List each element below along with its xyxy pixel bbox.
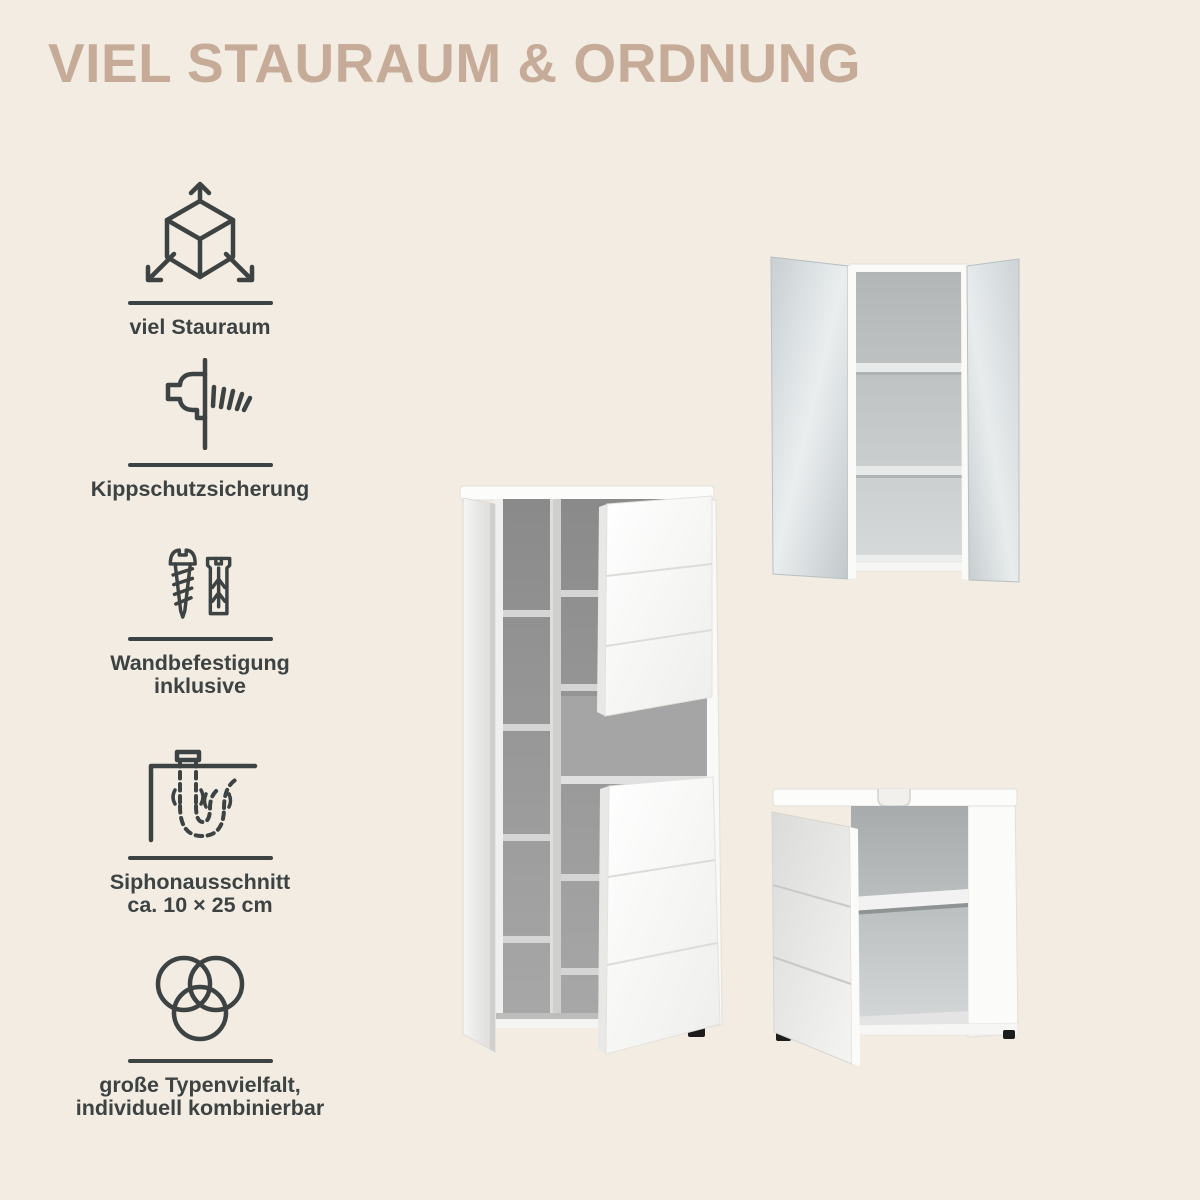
tall-storage-cabinet-open xyxy=(450,483,735,1075)
divider xyxy=(128,463,273,467)
variety-circles-icon xyxy=(140,953,260,1046)
divider xyxy=(128,637,273,641)
siphon-notch xyxy=(878,789,910,806)
wall-mounting-screw-dowel-icon xyxy=(162,546,238,624)
mirror-door-right xyxy=(961,259,1019,582)
tall-cabinet-left-door xyxy=(463,498,495,1052)
feature-wall-mounting: Wandbefestigung inklusive xyxy=(58,546,342,698)
feature-label: Siphonausschnitt ca. 10 × 25 cm xyxy=(110,871,290,917)
product-infographic: VIEL STAURAUM & ORDNUNG viel Stauraum xyxy=(0,0,1200,1200)
storage-volume-cube-icon xyxy=(135,181,265,288)
divider xyxy=(128,856,273,860)
tall-cabinet-upper-door xyxy=(597,496,712,716)
page-title: VIEL STAURAUM & ORDNUNG xyxy=(48,36,861,91)
sink-base-cabinet-open xyxy=(765,785,1025,1077)
sink-cabinet-door xyxy=(772,812,860,1066)
divider xyxy=(128,1059,273,1063)
feature-anti-tip: Kippschutzsicherung xyxy=(58,358,342,501)
feature-siphon-cutout: Siphonausschnitt ca. 10 × 25 cm xyxy=(58,744,342,917)
mirror-door-left xyxy=(771,257,856,579)
feature-label: viel Stauraum xyxy=(130,316,271,339)
tall-cabinet-lower-door xyxy=(598,777,720,1054)
mirror-wall-cabinet-open xyxy=(765,250,1025,590)
feature-storage: viel Stauraum xyxy=(58,181,342,339)
feature-label: Wandbefestigung inklusive xyxy=(110,652,290,698)
divider xyxy=(128,301,273,305)
feature-label: Kippschutzsicherung xyxy=(91,478,310,501)
feature-label: große Typenvielfalt, individuell kombini… xyxy=(76,1074,325,1120)
feature-variety: große Typenvielfalt, individuell kombini… xyxy=(58,953,342,1120)
anti-tip-screw-icon xyxy=(135,358,265,450)
siphon-cutout-icon xyxy=(133,744,268,843)
